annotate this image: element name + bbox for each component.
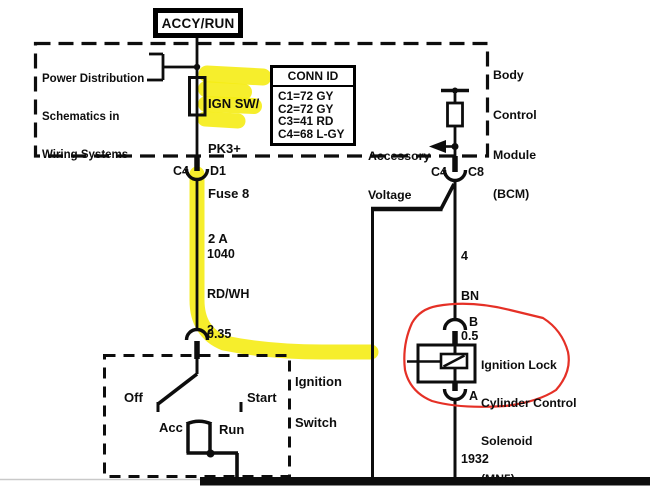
conn-id-title: CONN ID <box>273 68 353 87</box>
power-source-label: ACCY/RUN <box>153 8 243 38</box>
connector-a-label: A <box>469 390 478 403</box>
bcm-name-line: Body <box>493 69 537 82</box>
junction-dot <box>452 143 459 150</box>
note-line: Power Distribution <box>42 73 144 86</box>
note-line: Schematics in <box>42 111 144 124</box>
junction-dot <box>194 64 200 70</box>
ignition-switch-label: Ignition Switch <box>295 348 342 456</box>
ground-bar <box>200 477 650 486</box>
conn-id-row: C1=72 GY <box>278 90 353 103</box>
connector-b-label: B <box>469 316 478 329</box>
bcm-name-line: Module <box>493 149 537 162</box>
resistor-icon <box>448 103 463 126</box>
solenoid-label-line: Ignition Lock <box>481 359 576 372</box>
switch-position-off: Off <box>124 391 143 405</box>
conn-id-row: C4=68 L-GY <box>278 128 353 141</box>
fuse-label-line: Fuse 8 <box>208 186 259 201</box>
connector-c8-label: C8 <box>468 166 484 179</box>
connector-c4-right-label: C4 <box>419 166 447 179</box>
switch-position-run: Run <box>219 423 244 437</box>
bcm-name-line: Control <box>493 109 537 122</box>
wire-1040-label: 1040 RD/WH 0.35 <box>207 222 249 367</box>
accessory-voltage-line: Accessory <box>368 150 430 163</box>
wire-line: 4 <box>461 250 479 263</box>
solenoid-label-line: (MN5) <box>481 473 576 486</box>
wire-line: BN <box>461 290 479 303</box>
power-distribution-note: Power Distribution Schematics in Wiring … <box>42 47 144 188</box>
ignition-switch-line: Ignition <box>295 375 342 389</box>
bcm-name-label: Body Control Module (BCM) <box>493 43 537 228</box>
bcm-name-line: (BCM) <box>493 188 537 201</box>
connector-2-label: 2 <box>207 324 214 337</box>
wire-4-bn-label: 4 BN 0.5 <box>461 224 479 369</box>
connector-c4-c8-icon <box>445 156 466 181</box>
ignition-switch-line: Switch <box>295 416 342 430</box>
fuse-label-line: IGN SW/ <box>208 96 259 111</box>
solenoid-label-line: Solenoid <box>481 435 576 448</box>
conn-id-row: C3=41 RD <box>278 115 353 128</box>
wire-line: RD/WH <box>207 288 249 301</box>
accessory-voltage-arrow <box>429 140 455 153</box>
switch-position-start: Start <box>247 391 277 405</box>
solenoid-label-line: Cylinder Control <box>481 397 576 410</box>
wire-line: 1040 <box>207 248 249 261</box>
junction-dot <box>207 450 215 458</box>
solenoid-label: Ignition Lock Cylinder Control Solenoid … <box>481 334 576 487</box>
fuse-label-line: PK3+ <box>208 141 259 156</box>
note-line: Wiring Systems <box>42 149 144 162</box>
connector-a-icon <box>445 382 466 400</box>
connector-c4-left-label: C4 <box>161 165 189 178</box>
wire-line: 0.5 <box>461 330 479 343</box>
switch-position-acc: Acc <box>159 421 183 435</box>
wiring-diagram: ACCY/RUN Power Distribution Schematics i… <box>0 0 650 487</box>
conn-id-table: CONN ID C1=72 GY C2=72 GY C3=41 RD C4=68… <box>270 65 356 146</box>
branch-diagonal <box>441 184 454 209</box>
accessory-voltage-line: Voltage <box>368 189 430 202</box>
power-source-text: ACCY/RUN <box>162 16 235 31</box>
connector-d1-label: D1 <box>210 165 226 178</box>
switch-lever <box>158 374 197 404</box>
